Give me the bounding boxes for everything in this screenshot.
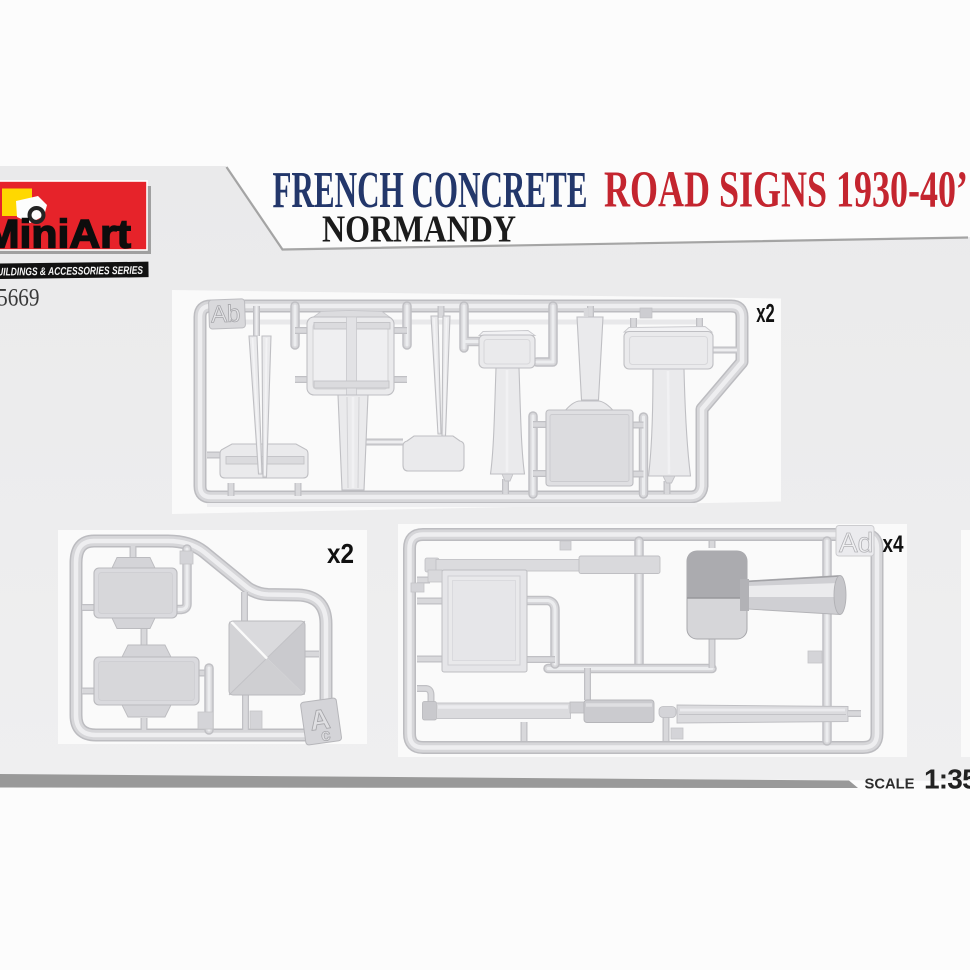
svg-text:x2: x2 bbox=[327, 538, 354, 569]
svg-text:MiniArt: MiniArt bbox=[0, 213, 131, 257]
svg-text:BUILDINGS & ACCESSORIES SERIES: BUILDINGS & ACCESSORIES SERIES bbox=[0, 265, 144, 279]
svg-text:x2: x2 bbox=[756, 300, 775, 328]
svg-text:35669: 35669 bbox=[0, 285, 40, 312]
svg-text:Ab: Ab bbox=[211, 300, 241, 328]
svg-text:NORMANDY: NORMANDY bbox=[322, 209, 516, 251]
svg-text:SCALE: SCALE bbox=[865, 777, 915, 793]
svg-text:1:35: 1:35 bbox=[924, 764, 970, 795]
svg-text:Ad: Ad bbox=[839, 527, 873, 558]
svg-text:ROAD SIGNS 1930-40’: ROAD SIGNS 1930-40’ bbox=[604, 162, 968, 219]
svg-text:x4: x4 bbox=[883, 531, 905, 558]
